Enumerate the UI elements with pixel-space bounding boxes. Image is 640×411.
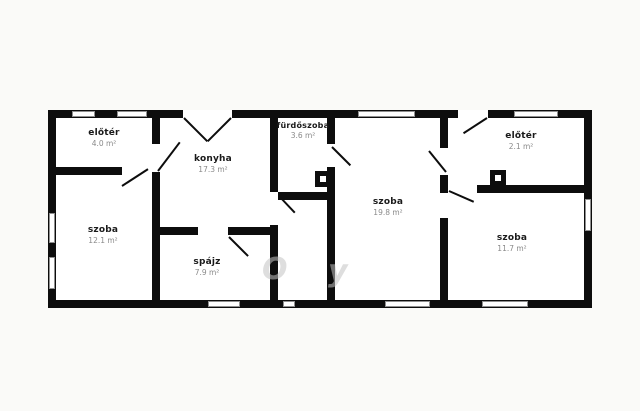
window-left-1 — [49, 213, 55, 243]
chimney-flue-right — [490, 170, 506, 186]
chimney-flue-opening — [320, 176, 326, 182]
wall-midroom-right-middle — [440, 175, 448, 193]
wall-foyer-room-horizontal — [56, 167, 122, 175]
window-bottom-midroom — [385, 301, 430, 307]
window-top-1 — [72, 111, 95, 117]
wall-foyer-kitchen-lower — [152, 172, 160, 300]
floor-plan-canvas: előtér 4.0 m² konyha 17.3 m² fürdőszoba … — [0, 0, 640, 411]
wall-kitchen-hall-lower — [270, 225, 278, 300]
wall-midroom-right-upper — [440, 118, 448, 148]
floor-plan-interior — [48, 110, 592, 308]
wall-midroom-right-lower — [440, 218, 448, 300]
window-bottom-pantry — [208, 301, 240, 307]
wall-kitchen-hall-upper — [270, 118, 278, 192]
window-top-right — [514, 111, 558, 117]
window-bottom-right — [482, 301, 528, 307]
wall-bathroom-bottom — [278, 192, 327, 200]
wall-pantry-top-left — [160, 227, 198, 235]
entrance-opening-kitchen — [183, 110, 232, 118]
window-right-1 — [585, 199, 591, 231]
wall-right-foyer-bottom — [477, 185, 584, 193]
chimney-flue-opening — [495, 175, 501, 181]
window-top-2 — [117, 111, 147, 117]
entrance-opening-right — [458, 110, 488, 118]
chimney-flue-center — [315, 171, 331, 187]
wall-bathroom-right-upper — [327, 118, 335, 144]
window-top-midroom — [358, 111, 415, 117]
window-left-2 — [49, 257, 55, 289]
wall-pantry-top-right — [228, 227, 278, 235]
wall-foyer-kitchen-upper — [152, 118, 160, 144]
window-bottom-hall — [283, 301, 295, 307]
